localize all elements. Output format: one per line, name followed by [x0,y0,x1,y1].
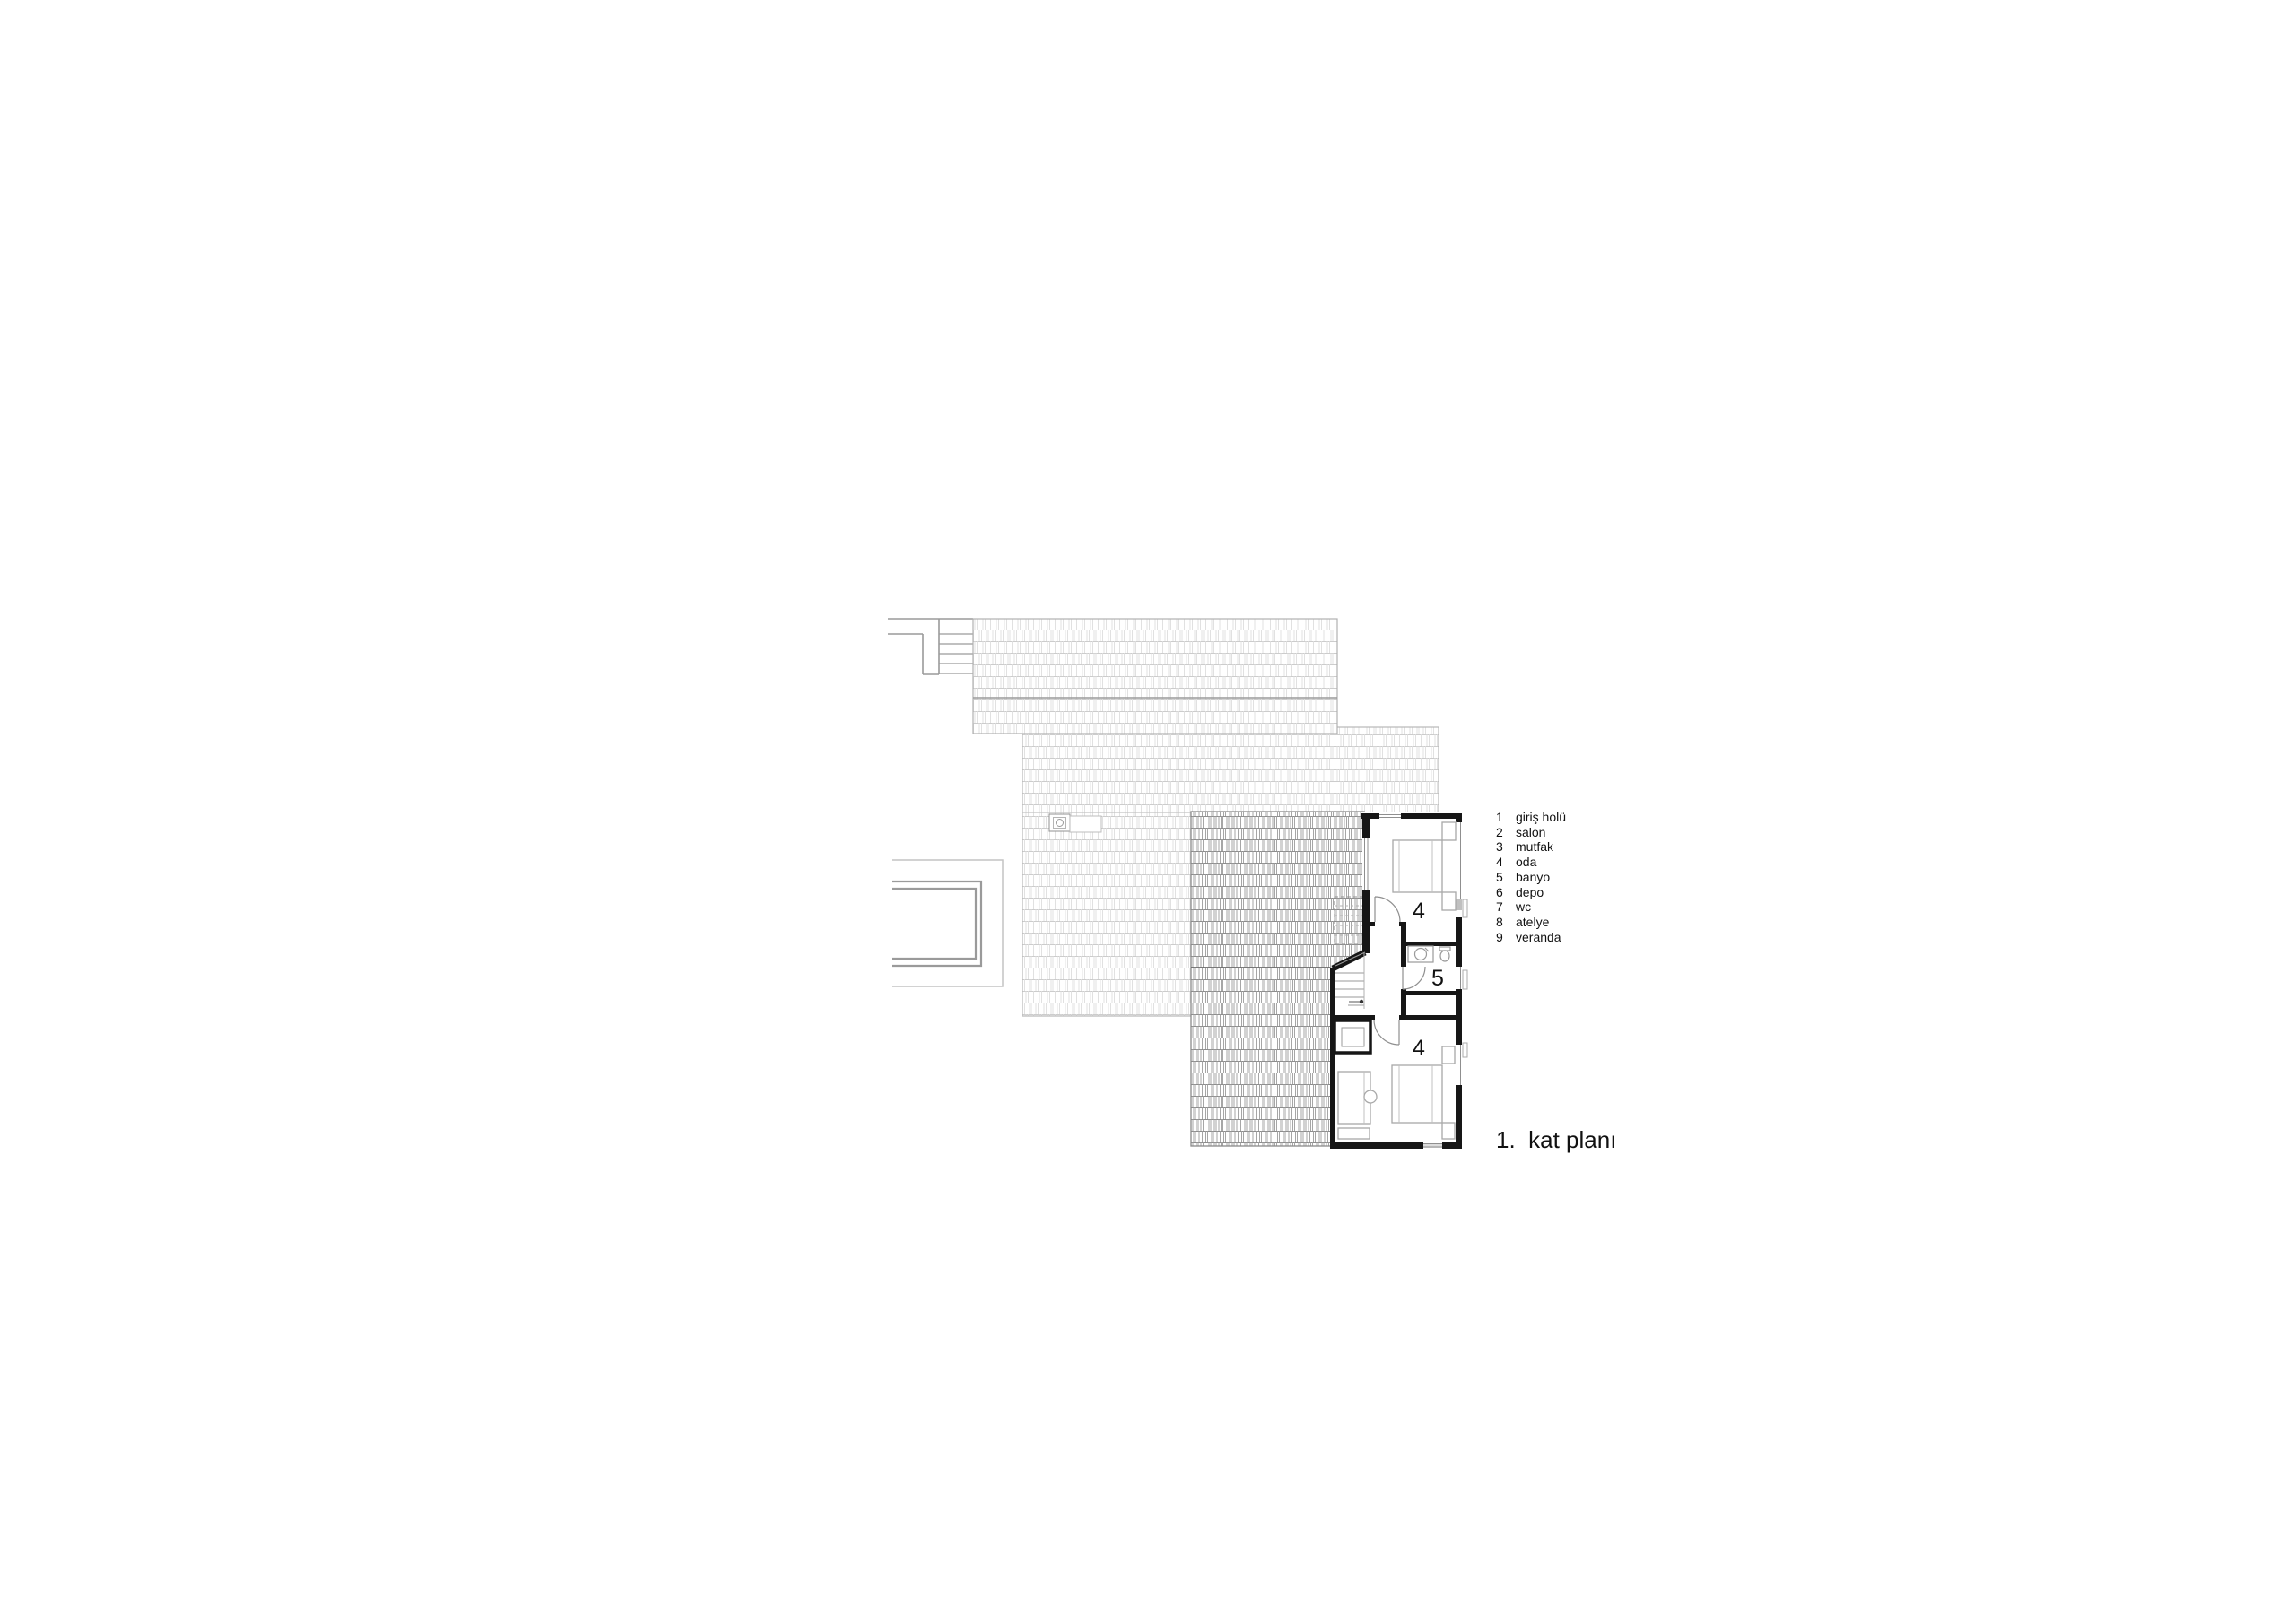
legend-label: mutfak [1516,839,1553,855]
legend-label: salon [1516,825,1545,840]
sink-basin [1415,949,1427,960]
stool [1364,1090,1377,1103]
legend-item: 9 veranda [1496,930,1566,945]
legend-label: atelye [1516,915,1549,930]
legend-number: 4 [1496,855,1516,870]
legend-number: 5 [1496,870,1516,885]
legend-item: 3 mutfak [1496,839,1566,855]
legend-label: wc [1516,899,1531,915]
legend-number: 9 [1496,930,1516,945]
legend-label: depo [1516,885,1544,900]
drawing-title: 1. kat planı [1496,1126,1616,1154]
legend-label: banyo [1516,870,1550,885]
legend-item: 8 atelye [1496,915,1566,930]
nightstand [1442,1046,1455,1064]
legend-number: 8 [1496,915,1516,930]
legend-item: 7 wc [1496,899,1566,915]
legend-item: 5 banyo [1496,870,1566,885]
legend-item: 6 depo [1496,885,1566,900]
roof-upper-light [973,619,1337,734]
bench [1338,1128,1370,1139]
chimney [1049,814,1101,832]
floor-plan-drawing [0,0,2296,1624]
bathroom-fixtures [1408,946,1450,962]
legend-number: 1 [1496,810,1516,825]
legend-number: 3 [1496,839,1516,855]
legend-number: 6 [1496,885,1516,900]
room-label-5-bath: 5 [1425,966,1450,992]
storage-shaft [1335,1020,1370,1053]
nightstand [1442,892,1456,910]
wall-pier [1456,899,1462,910]
window-sills [1463,899,1467,1057]
pool [892,860,1003,986]
legend-label: oda [1516,855,1536,870]
nightstand [1442,1123,1455,1139]
legend: 1 giriş holü 2 salon 3 mutfak 4 oda 5 ba… [1496,810,1566,944]
toilet-bowl [1440,951,1449,961]
entry-steps [888,619,973,674]
room-label-4-top: 4 [1406,899,1431,925]
legend-item: 1 giriş holü [1496,810,1566,825]
nightstand [1442,822,1456,840]
bed-top [1393,840,1442,892]
legend-number: 7 [1496,899,1516,915]
room-label-4-bottom: 4 [1406,1036,1431,1062]
legend-item: 4 oda [1496,855,1566,870]
floor-plan-page: 4 5 4 1 giriş holü 2 salon 3 mutfak 4 od… [0,0,2296,1624]
legend-number: 2 [1496,825,1516,840]
legend-label: veranda [1516,930,1561,945]
legend-label: giriş holü [1516,810,1566,825]
legend-item: 2 salon [1496,825,1566,840]
